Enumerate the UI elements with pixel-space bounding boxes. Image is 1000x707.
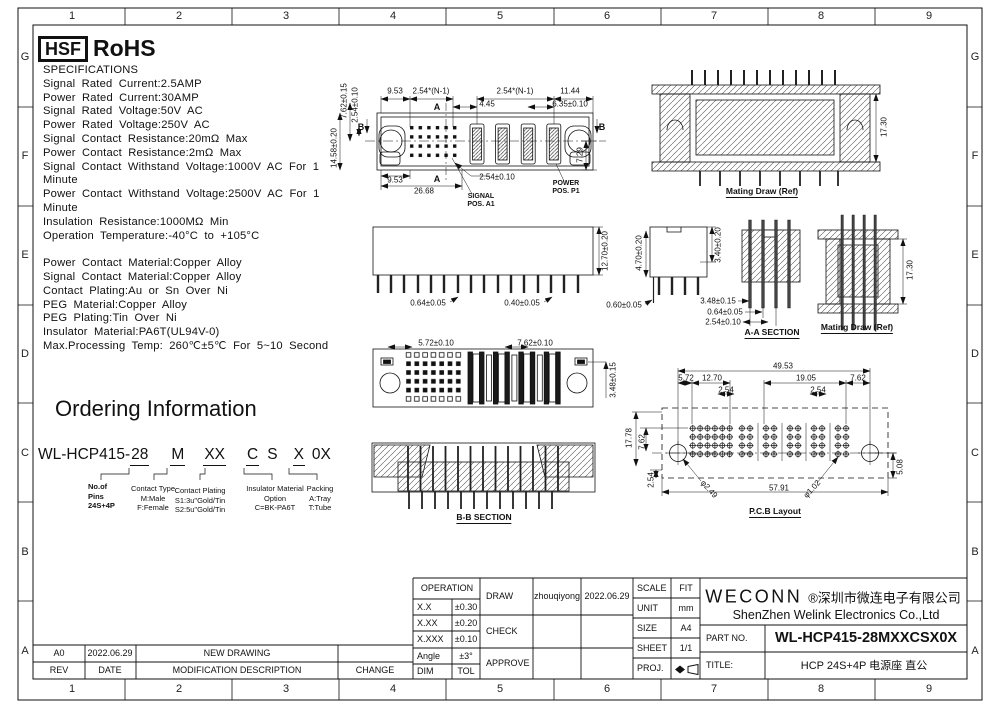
row-label: B [21, 546, 28, 558]
spec-line: Signal Contact Material:Copper Alloy [43, 271, 363, 285]
dim-label: 3.48±0.15 [609, 362, 618, 398]
approve-label: APPROVE [486, 658, 530, 668]
dim-label: 57.91 [769, 484, 789, 493]
ordering-label-contact-plating: Contact Plating S1:3u"Gold/Tin S2:5u"Gol… [175, 486, 226, 515]
column-label: 6 [604, 10, 610, 22]
scale-value: FIT [679, 583, 693, 593]
dim-label: 2.54*(N-1) [497, 87, 534, 96]
revision-change-header: CHANGE [356, 665, 395, 675]
spec-line: Power Contact Withstand Voltage:2500V AC… [43, 188, 363, 202]
dim-label: 2.54±0.10 [479, 173, 515, 182]
hsf-logo: HSF [38, 36, 88, 62]
spec-line: Contact Plating:Au or Sn Over Ni [43, 285, 363, 299]
dim-label: 9.53 [387, 87, 403, 96]
row-label: E [21, 249, 28, 261]
dim-label: 12.70±0.20 [601, 231, 610, 271]
sheet-label: SHEET [637, 643, 667, 653]
spec-line [43, 243, 363, 257]
dim-label: 26.68 [414, 187, 434, 196]
dim-label: 5.72 [678, 374, 694, 383]
column-label: 4 [390, 683, 396, 695]
tolerance-value: ±3° [459, 651, 473, 661]
company-header: WECONN ®深圳市微连电子有限公司 [705, 587, 961, 608]
spec-line: Insulator Material:PA6T(UL94V-0) [43, 326, 363, 340]
row-label: E [971, 249, 978, 261]
part-seg-type: M [170, 446, 185, 466]
signal-position-note: SIGNAL POS. A1 [467, 193, 494, 209]
side-view-drawing [645, 227, 716, 304]
ordering-leader-lines [101, 468, 317, 480]
revision-date-header: DATE [98, 665, 121, 675]
dim-label: 17.78 [625, 428, 634, 448]
spec-line: Signal Rated Current:2.5AMP [43, 78, 363, 92]
column-label: 8 [818, 10, 824, 22]
title-label: TITLE: [706, 660, 733, 670]
spec-line: Insulation Resistance:1000MΩ Min [43, 216, 363, 230]
column-label: 1 [69, 683, 75, 695]
company-name-cn: ®深圳市微连电子有限公司 [808, 588, 961, 607]
size-value: A4 [680, 623, 691, 633]
bb-section-drawing [372, 443, 595, 509]
revision-rev-value: A0 [53, 648, 64, 658]
scale-label: SCALE [637, 583, 667, 593]
dim-label: 2.54*(N-1) [413, 87, 450, 96]
spec-line: Power Rated Voltage:250V AC [43, 119, 363, 133]
spec-line: Signal Contact Withstand Voltage:1000V A… [43, 161, 363, 175]
draw-label: DRAW [486, 591, 513, 601]
dim-label: 19.05 [796, 374, 816, 383]
part-number-breakdown: WL-HCP415-28MXXCSX0X [38, 446, 331, 466]
dim-label: 49.53 [773, 362, 793, 371]
column-label: 6 [604, 683, 610, 695]
draw-name: zhouqiyong [534, 591, 580, 601]
spec-line: Operation Temperature:-40°C to +105°C [43, 230, 363, 244]
front-view-drawing [373, 227, 603, 302]
ordering-information-title: Ordering Information [55, 396, 257, 422]
dim-label: 2.54 [718, 386, 734, 395]
tolerance-value: ±0.20 [455, 618, 477, 628]
dim-label: 4.70±0.20 [635, 235, 644, 271]
row-label: G [971, 51, 980, 63]
section-mark-b: B [599, 122, 606, 132]
column-label: 7 [711, 10, 717, 22]
dim-label: 6.35±0.10 [552, 100, 588, 109]
column-label: 7 [711, 683, 717, 695]
section-mark-a: A [434, 174, 441, 184]
unit-label: UNIT [637, 603, 658, 613]
rohs-logo: RoHS [93, 35, 156, 62]
part-seg-pins: 28 [130, 446, 149, 466]
sheet-value: 1/1 [680, 643, 693, 653]
row-label: B [971, 546, 978, 558]
spec-line: Power Rated Current:30AMP [43, 92, 363, 106]
column-label: 8 [818, 683, 824, 695]
row-label: C [971, 447, 979, 459]
engineering-drawing-sheet: 1 2 3 4 5 6 7 8 9 1 2 3 4 5 6 7 8 9 G F … [0, 0, 1000, 707]
spec-line: Signal Rated Voltage:50V AC [43, 105, 363, 119]
revision-desc-value: NEW DRAWING [204, 648, 271, 658]
section-mark-b: B [358, 122, 365, 132]
dim-label: 9.53 [387, 176, 403, 185]
row-label: F [22, 150, 29, 162]
revision-date-value: 2022.06.29 [87, 648, 132, 658]
tolerance-dim: X.X [417, 602, 432, 612]
dim-label: 5.08 [896, 459, 905, 475]
ordering-label-pins: No.of Pins 24S+4P [88, 482, 115, 511]
operation-header: OPERATION [421, 583, 473, 593]
unit-value: mm [679, 603, 694, 613]
size-label: SIZE [637, 623, 657, 633]
mating-draw-top [652, 70, 880, 186]
aa-section-drawing [738, 220, 800, 326]
drawing-caption: B-B SECTION [456, 512, 511, 524]
column-label: 2 [176, 683, 182, 695]
dim-label: 3.48±0.15 [700, 297, 736, 306]
column-label: 9 [926, 683, 932, 695]
dim-label: 7.62 [638, 434, 647, 450]
column-label: 9 [926, 10, 932, 22]
row-label: A [21, 645, 28, 657]
dim-label: 7.62±0.15 [340, 83, 349, 119]
revision-desc-header: MODIFICATION DESCRIPTION [173, 665, 302, 675]
row-label: G [21, 51, 30, 63]
drawing-caption: Mating Draw (Ref) [821, 322, 893, 334]
drawing-caption: Mating Draw (Ref) [726, 186, 798, 198]
column-label: 4 [390, 10, 396, 22]
projection-label: PROJ. [637, 663, 664, 673]
dim-label: 0.40±0.05 [504, 299, 540, 308]
dim-label: 17.30 [906, 260, 915, 280]
part-seg-packing: X [293, 446, 305, 466]
row-label: D [21, 348, 29, 360]
power-position-note: POWER POS. P1 [552, 180, 579, 196]
tolerance-value: ±0.30 [455, 602, 477, 612]
dim-label: 11.44 [560, 87, 579, 96]
column-label: 2 [176, 10, 182, 22]
row-label: D [971, 348, 979, 360]
row-label: F [972, 150, 979, 162]
spec-line: Minute [43, 202, 363, 216]
company-logo: WECONN [705, 587, 802, 608]
specifications-block: SPECIFICATIONS Signal Rated Current:2.5A… [43, 64, 363, 354]
dim-label: 4.45 [479, 100, 495, 109]
dim-label: 0.64±0.05 [410, 299, 446, 308]
tolerance-value: TOL [457, 666, 474, 676]
dim-label: 14.58±0.20 [330, 128, 339, 168]
part-seg-0x: 0X [312, 446, 331, 464]
tolerance-value: ±0.10 [455, 634, 477, 644]
row-label: C [21, 447, 29, 459]
dim-label: 0.60±0.05 [606, 301, 642, 310]
ordering-label-packing: Packing A:Tray T:Tube [307, 484, 334, 513]
part-seg-insulator: C [246, 446, 259, 466]
part-seg-s: S [267, 446, 277, 464]
row-label: A [971, 645, 978, 657]
dim-label: 5.72±0.10 [418, 339, 454, 348]
spec-line: Power Contact Resistance:2mΩ Max [43, 147, 363, 161]
dim-label: 2.54±0.10 [351, 87, 360, 123]
section-mark-a: A [434, 102, 441, 112]
dim-label: 3.40±0.20 [714, 227, 723, 263]
draw-date: 2022.06.29 [584, 591, 629, 601]
part-base: WL-HCP415- [38, 446, 130, 464]
dim-label: 2.54±0.10 [705, 318, 741, 327]
column-label: 3 [283, 683, 289, 695]
tolerance-dim: DIM [417, 666, 434, 676]
compliance-logos: HSF RoHS [38, 35, 156, 62]
company-name-en: ShenZhen Welink Electronics Co.,Ltd [733, 608, 940, 622]
dim-label: 12.70 [702, 374, 722, 383]
tolerance-dim: X.XXX [417, 634, 444, 644]
title-value: HCP 24S+4P 电源座 直公 [801, 657, 927, 673]
column-label: 1 [69, 10, 75, 22]
dim-label: 7.62 [850, 374, 866, 383]
spec-line: SPECIFICATIONS [43, 64, 363, 78]
column-label: 5 [497, 683, 503, 695]
spec-line: Max.Processing Temp: 260℃±5℃ For 5~10 Se… [43, 340, 363, 354]
dim-label: 7.62±0.10 [517, 339, 553, 348]
revision-rev-header: REV [50, 665, 69, 675]
bottom-view-drawing [373, 347, 606, 407]
dim-label: 0.64±0.05 [707, 308, 743, 317]
tolerance-dim: Angle [417, 651, 440, 661]
drawing-caption: P.C.B Layout [749, 506, 801, 518]
spec-line: PEG Material:Copper Alloy [43, 299, 363, 313]
part-no-value: WL-HCP415-28MXXCSX0X [775, 630, 957, 646]
mating-draw-side [818, 215, 907, 330]
part-seg-plating: XX [203, 446, 226, 466]
drawing-caption: A-A SECTION [745, 327, 800, 339]
dim-label: 2.54 [810, 386, 826, 395]
column-label: 5 [497, 10, 503, 22]
dim-label: 2.54 [647, 472, 656, 488]
tolerance-dim: X.XX [417, 618, 438, 628]
ordering-label-contact-type: Contact Type M:Male F:Female [131, 484, 175, 513]
spec-line: Signal Contact Resistance:20mΩ Max [43, 133, 363, 147]
dim-label: 17.30 [880, 117, 889, 137]
column-label: 3 [283, 10, 289, 22]
spec-line: PEG Plating:Tin Over Ni [43, 312, 363, 326]
check-label: CHECK [486, 626, 518, 636]
pcb-layout-drawing [632, 368, 898, 496]
dim-label: 7.29 [576, 147, 585, 163]
ordering-label-insulator: Insulator Material Option C=BK-PA6T [246, 484, 304, 513]
spec-line: Minute [43, 174, 363, 188]
part-no-label: PART NO. [706, 633, 748, 643]
projection-symbol-icon [672, 663, 700, 681]
spec-line: Power Contact Material:Copper Alloy [43, 257, 363, 271]
